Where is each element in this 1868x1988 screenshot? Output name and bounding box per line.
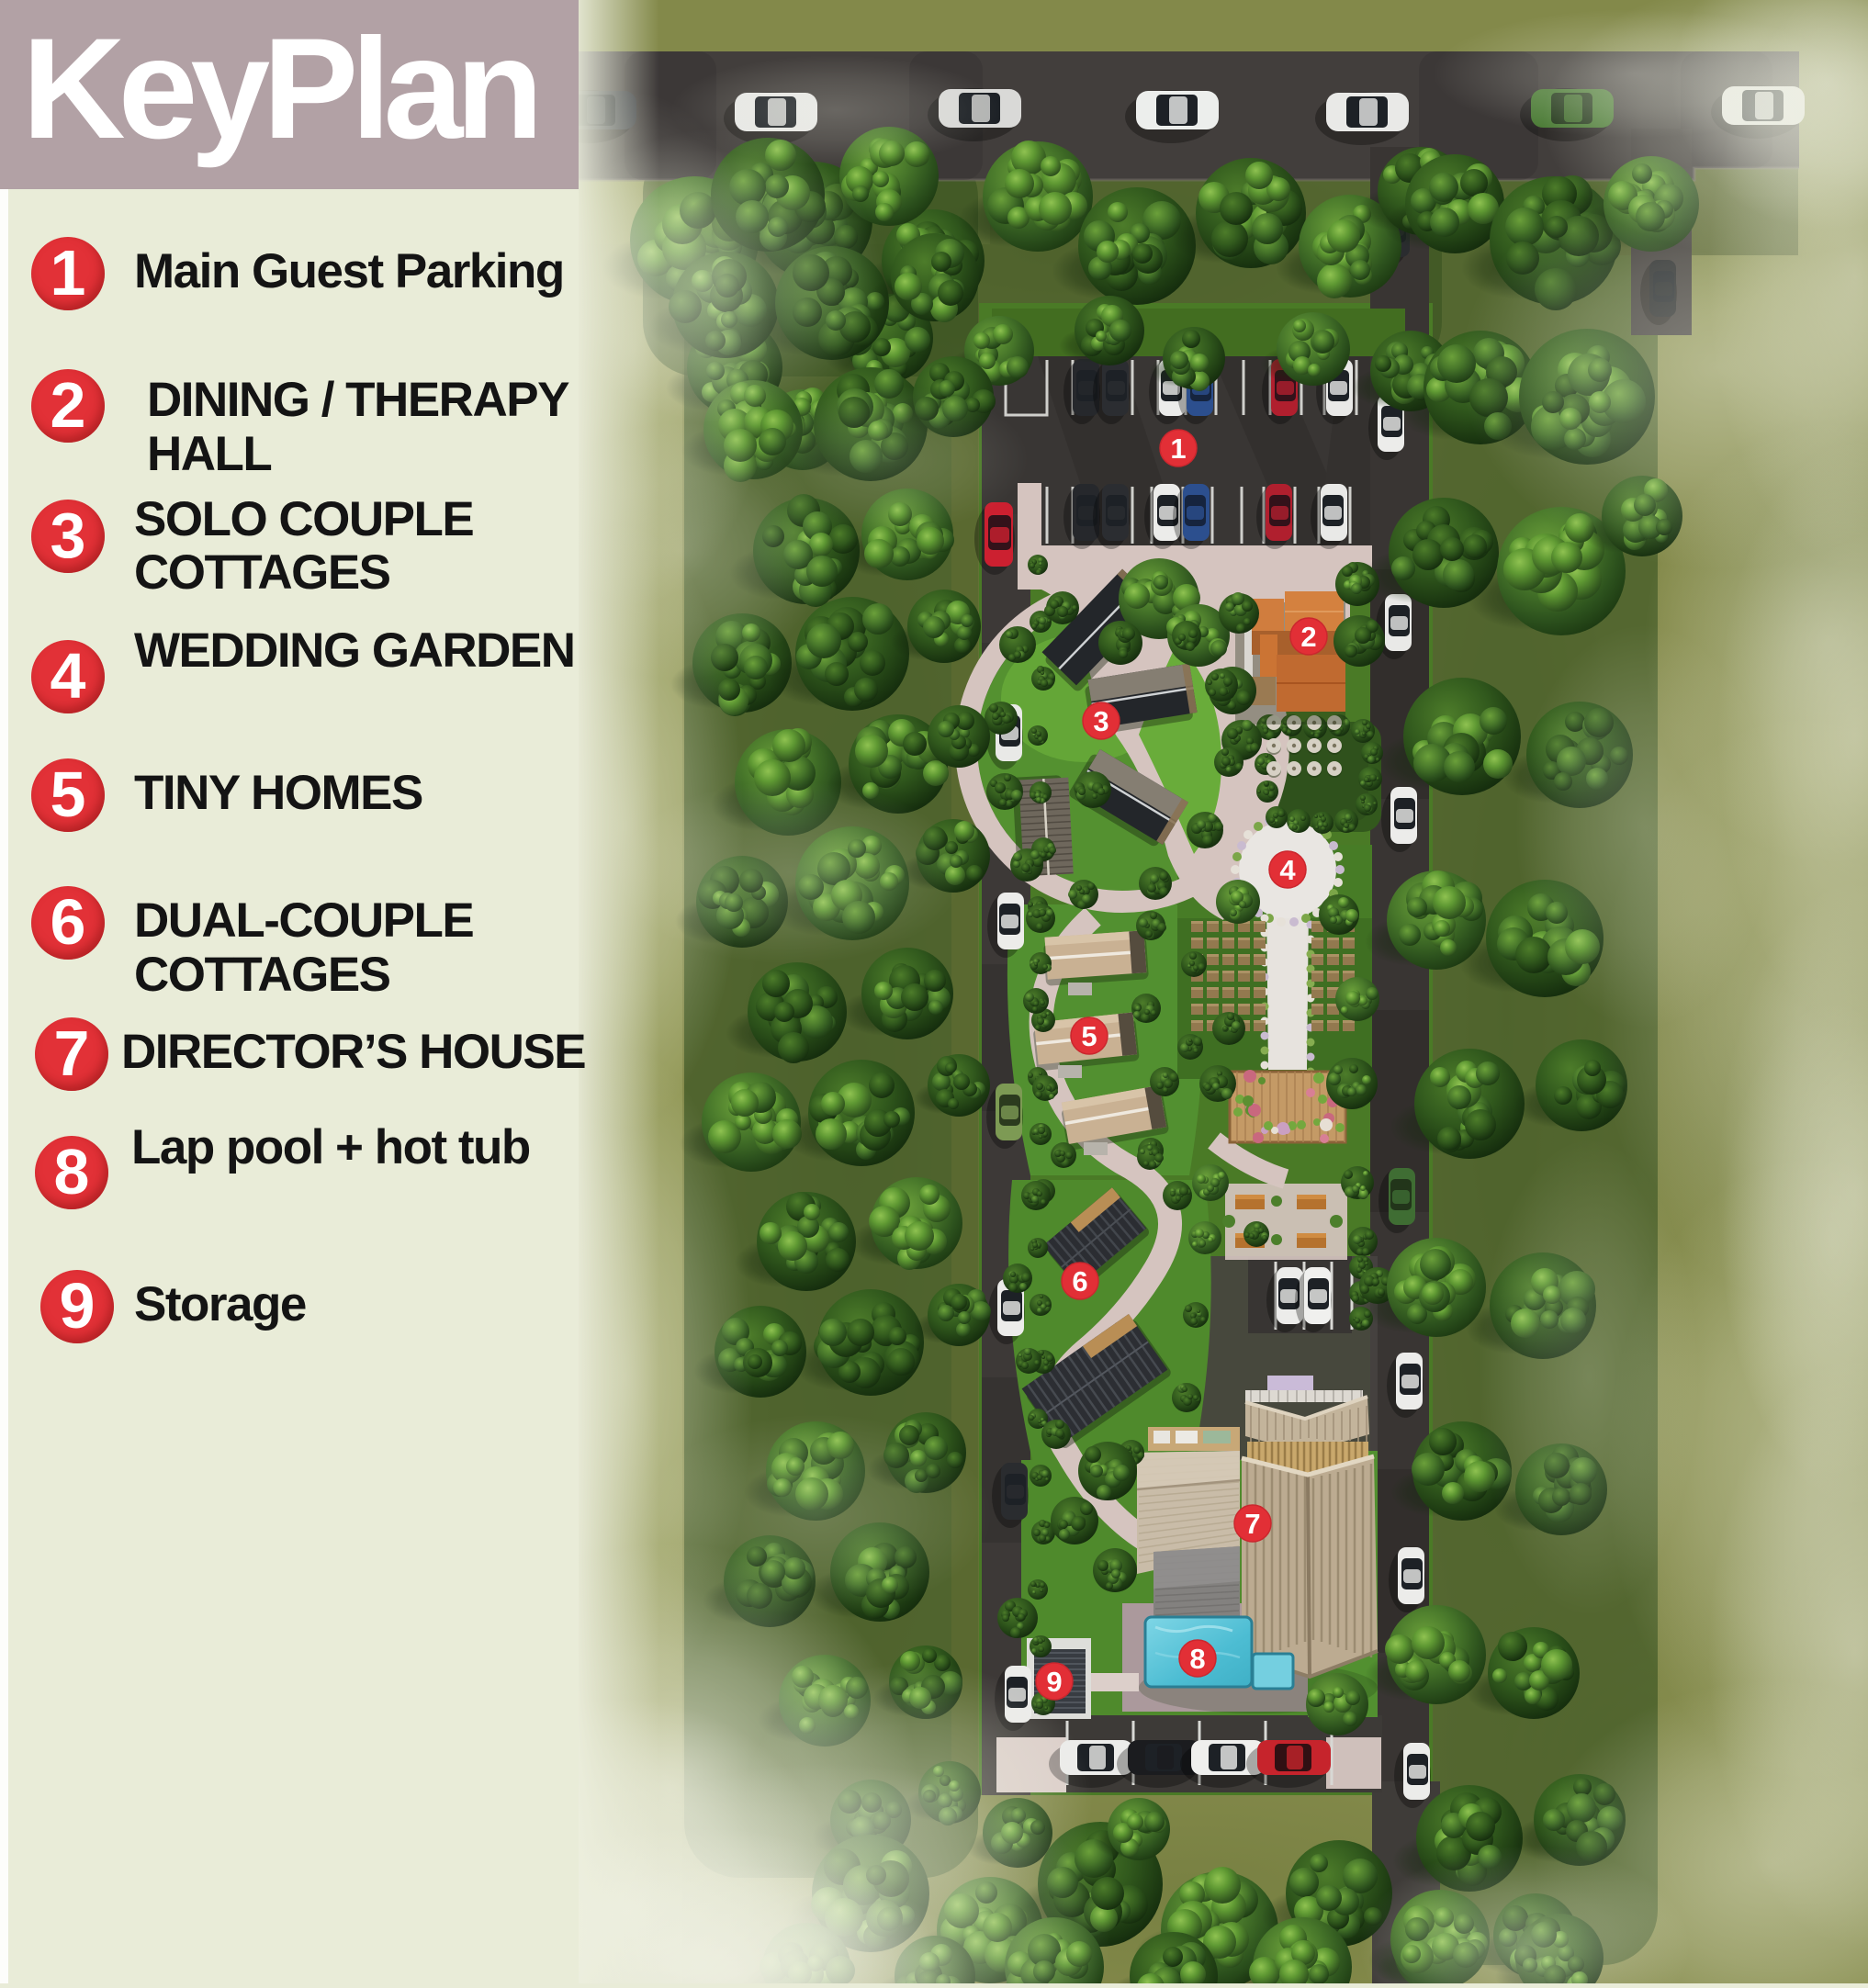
svg-text:1: 1 — [1170, 432, 1186, 465]
svg-text:6: 6 — [1072, 1265, 1087, 1297]
svg-text:5: 5 — [1081, 1020, 1097, 1052]
svg-text:8: 8 — [1189, 1643, 1205, 1675]
svg-text:2: 2 — [1300, 621, 1316, 653]
svg-text:4: 4 — [1279, 854, 1296, 886]
svg-text:9: 9 — [1046, 1666, 1062, 1698]
svg-text:7: 7 — [1244, 1508, 1260, 1540]
svg-text:3: 3 — [1093, 705, 1108, 737]
